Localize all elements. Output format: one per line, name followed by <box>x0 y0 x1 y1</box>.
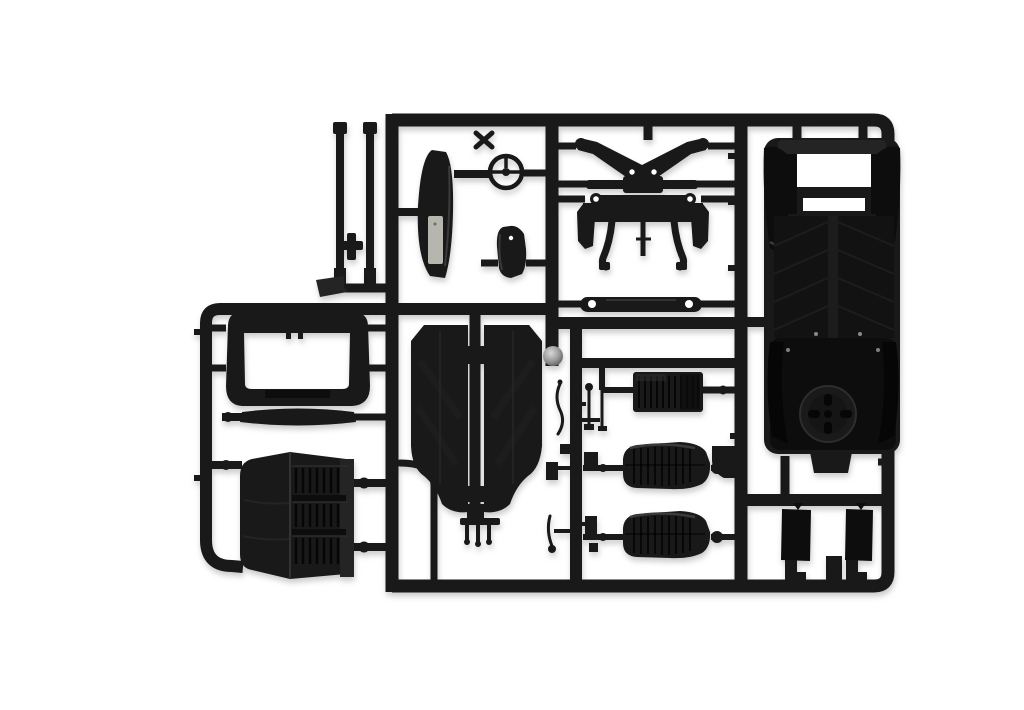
subframe-foot <box>599 262 610 270</box>
wheel-slot <box>824 422 832 434</box>
comb-prongs <box>467 525 489 542</box>
subframe-end-plate-right <box>690 204 709 249</box>
frame-notch <box>286 333 291 339</box>
door-plates <box>781 503 873 581</box>
frame-bottom-step <box>265 390 330 398</box>
plate-foot <box>785 560 806 581</box>
hood-band-gap <box>292 529 346 536</box>
link-center-block <box>623 176 663 193</box>
wishbone-ball <box>575 138 587 150</box>
subframe-eye-hole <box>593 196 599 202</box>
small-block <box>560 444 570 454</box>
hood-gate-bulge <box>359 478 370 489</box>
small-tray-part <box>316 276 347 297</box>
sprue-illustration <box>40 16 1024 694</box>
wheel-slot <box>808 410 820 418</box>
tie-rod-hole <box>685 300 693 308</box>
wishbone-right <box>636 138 706 179</box>
tie-rod-hole <box>588 300 596 308</box>
seat-rear <box>583 511 741 558</box>
plate-gate-nub <box>793 503 803 510</box>
tiny-part <box>589 543 598 552</box>
tie-rod <box>552 297 741 312</box>
frame-notch <box>298 333 303 339</box>
tub-pin-mark <box>786 348 790 352</box>
seat-gate-knob <box>711 462 723 474</box>
cowl-gate-bulge <box>223 412 233 422</box>
roll-bar-rods <box>316 122 392 297</box>
chassis-pin-mark <box>858 332 862 336</box>
lever-base <box>598 426 607 431</box>
door-plate-right <box>845 509 873 561</box>
wheel-hub <box>824 410 832 418</box>
model-kit-sprue-photo <box>40 16 1024 694</box>
dashboard-dot <box>434 223 437 226</box>
comb-foot <box>475 541 481 547</box>
sprue-assembly <box>194 114 900 592</box>
bracket-body <box>497 226 526 278</box>
grille-highlight <box>636 374 666 381</box>
steering-wheel <box>476 133 546 188</box>
wishbone-eye-hole <box>651 169 656 174</box>
door-plate-left <box>781 509 811 561</box>
hood-louvers <box>296 468 338 564</box>
hood-gate-bulge <box>221 460 231 470</box>
chassis-top-rail <box>778 140 886 154</box>
subframe-eye-hole <box>687 196 693 202</box>
subframe-foot <box>676 262 687 270</box>
pedal-lever <box>548 516 552 546</box>
tub-pin-mark <box>876 348 880 352</box>
small-bracket <box>546 462 558 480</box>
frame-thin-drop-rod <box>400 463 434 586</box>
louvered-hood <box>212 452 386 579</box>
hood-right-margin <box>340 459 354 577</box>
center-tab <box>826 556 842 580</box>
chassis-crossbar <box>795 187 873 198</box>
wishbone-eye-hole <box>629 169 634 174</box>
grille-gate-bulge <box>719 386 728 395</box>
bracket-hole <box>509 236 513 240</box>
wishbone-ball <box>697 138 709 150</box>
rod <box>336 128 344 274</box>
front-axle-subframe <box>552 193 741 270</box>
wheel-slot <box>840 410 852 418</box>
pedal-disc <box>548 545 556 553</box>
console-bracket <box>481 226 546 278</box>
steering-link <box>552 176 741 193</box>
subframe-beam <box>583 203 703 222</box>
ribbed-grille-panel <box>602 363 741 412</box>
hood-gates-right <box>354 483 386 547</box>
panel-gate-block <box>465 486 486 502</box>
comb-part <box>460 518 500 547</box>
chassis-spine <box>828 216 838 338</box>
metal-ball-joint <box>543 346 563 366</box>
hood-gate-bulge <box>359 542 370 553</box>
subframe-top-bar <box>596 195 690 203</box>
chassis-pin-mark <box>814 332 818 336</box>
grille-shadow <box>680 374 700 410</box>
windshield-frame <box>212 313 386 406</box>
gear-knob <box>585 383 593 391</box>
cowl-strip <box>222 409 386 426</box>
subframe-leg-left <box>602 221 612 267</box>
rod <box>366 128 374 274</box>
chassis-bottom-tab <box>810 452 852 473</box>
wheel-hub <box>502 168 510 176</box>
comb-bar <box>460 518 500 525</box>
comb-foot <box>464 539 470 545</box>
subframe-leg-right <box>674 221 684 267</box>
subframe-end-plate-left <box>577 204 596 249</box>
cowl-strip-body <box>240 409 356 426</box>
gear-lever-base <box>584 424 594 430</box>
plate-foot <box>846 560 867 581</box>
wheel-slot <box>824 394 832 406</box>
seat-gate-bump <box>599 464 607 472</box>
thin-rod-tip <box>558 380 563 385</box>
spare-wheel <box>800 386 856 442</box>
rod-foot <box>364 268 376 286</box>
chassis-opening-upper <box>797 154 871 187</box>
x-fitting <box>476 133 492 147</box>
suspension-wishbones <box>552 138 741 179</box>
chassis-opening-lower <box>803 198 865 211</box>
plate-gate-nub <box>856 503 866 510</box>
thin-rod-part <box>557 384 563 434</box>
comb-foot <box>486 539 492 545</box>
hood-band-gap <box>292 495 346 502</box>
panel-gate-block-low <box>467 504 484 520</box>
cross-fitting-arm <box>340 241 363 250</box>
dashboard-panel <box>398 150 489 278</box>
panel-gate-block <box>465 346 486 364</box>
